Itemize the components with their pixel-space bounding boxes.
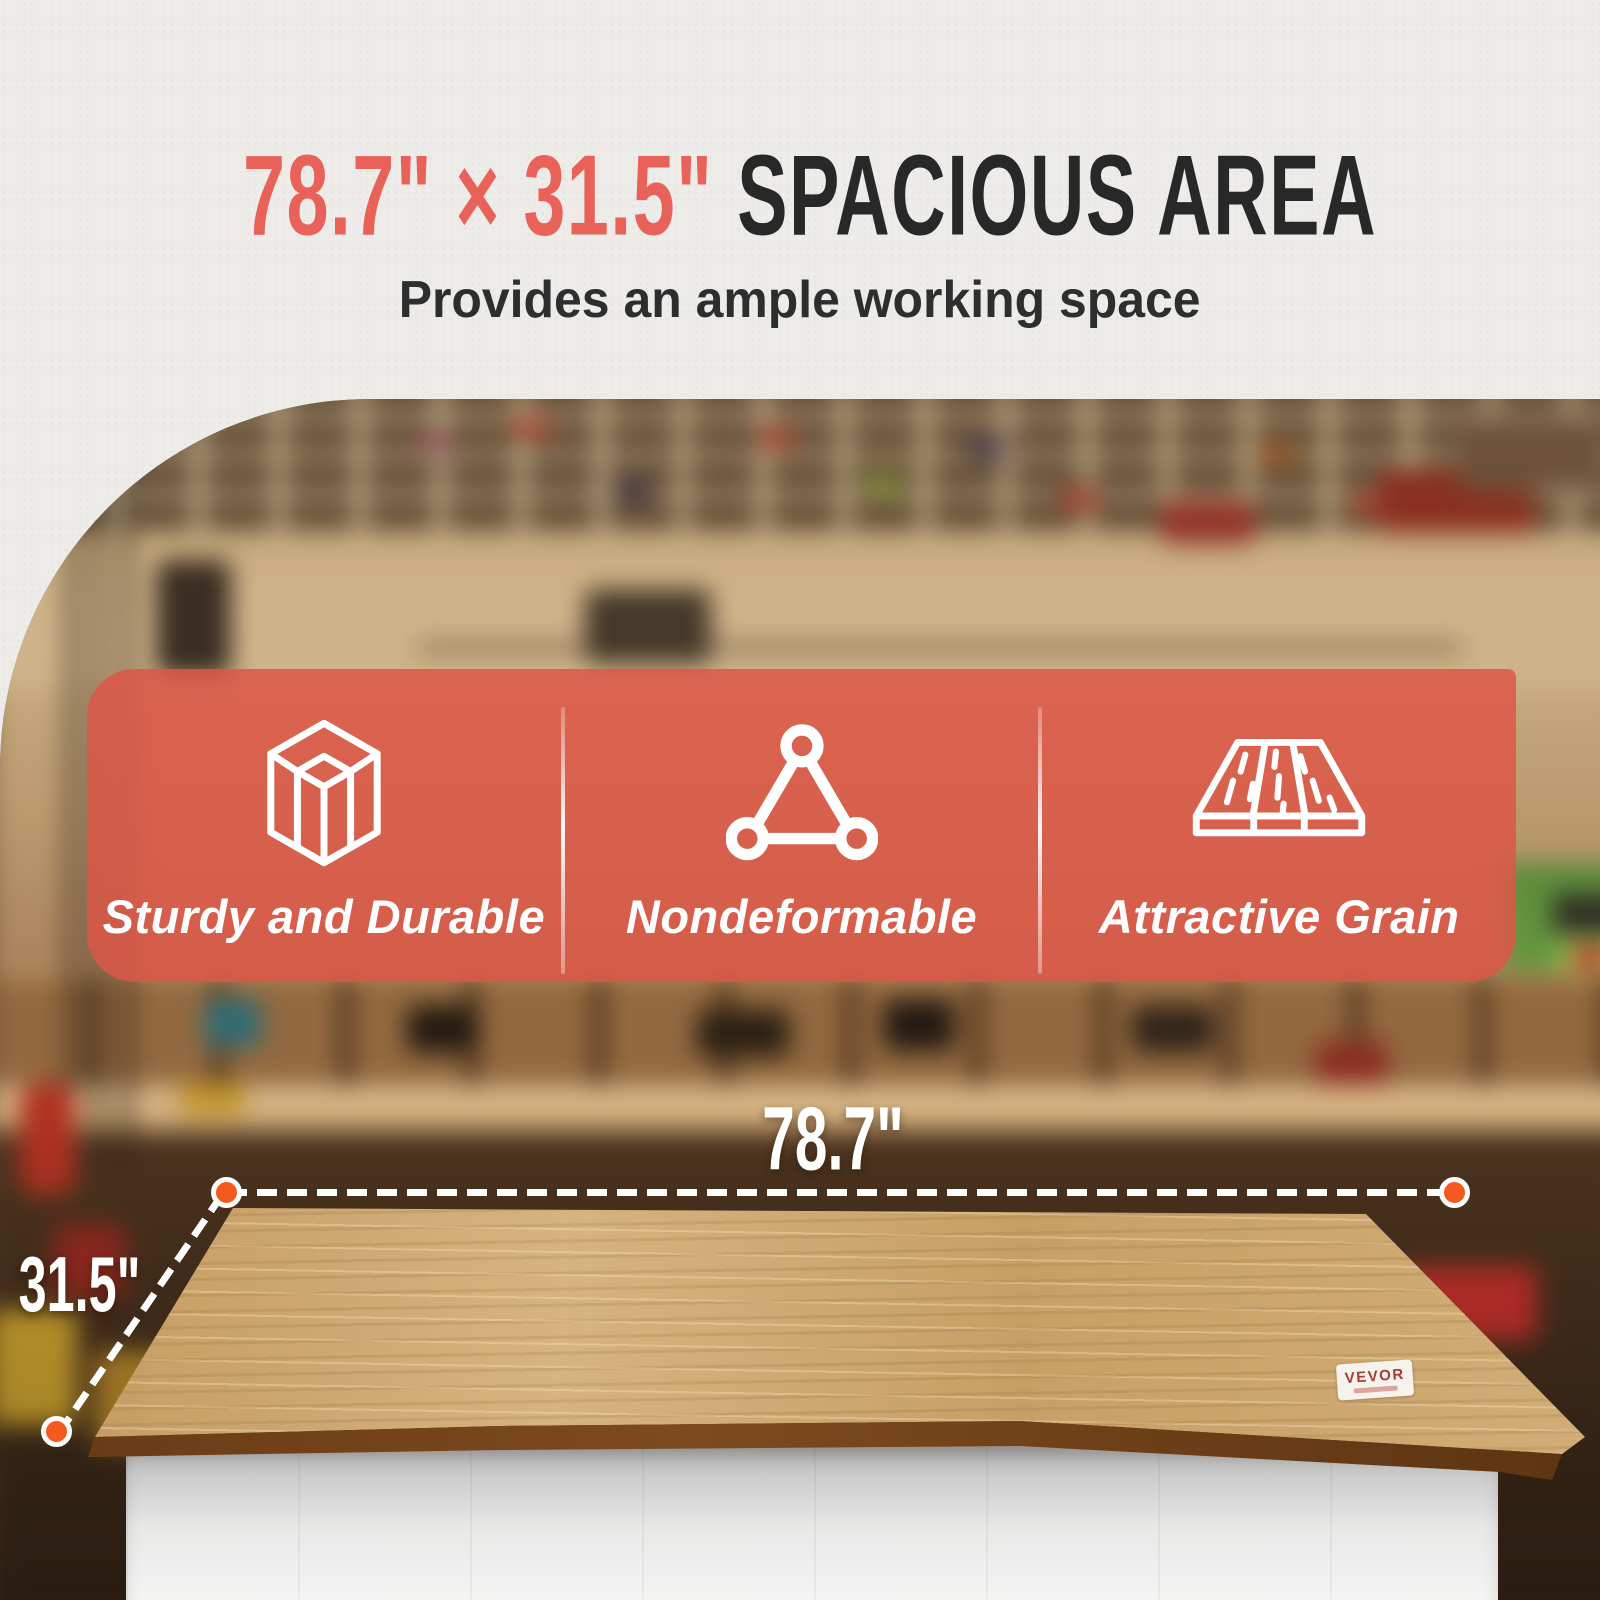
- dimension-dot: [1439, 1177, 1470, 1208]
- feature-label: Nondeformable: [626, 893, 977, 940]
- width-dimension-label: 78.7": [698, 1094, 968, 1180]
- cube-wireframe-icon: [260, 707, 388, 879]
- dimension-dot: [41, 1416, 72, 1447]
- wood-grain-icon: [1184, 707, 1374, 879]
- brand-sticker: VEVOR: [1336, 1359, 1414, 1400]
- feature-label: Sturdy and Durable: [103, 893, 546, 940]
- brand-label: VEVOR: [1344, 1366, 1405, 1385]
- tabletop: [80, 1200, 1590, 1495]
- width-dimension-line: [227, 1189, 1455, 1196]
- page-title: 78.7" × 31.5"SPACIOUS AREA: [0, 138, 1600, 246]
- depth-dimension-label: 31.5": [0, 1246, 180, 1320]
- feature-label: Attractive Grain: [1099, 893, 1460, 940]
- dimension-dot: [211, 1177, 242, 1208]
- feature-item-sturdy: Sturdy and Durable: [87, 669, 561, 982]
- feature-item-nondeformable: Nondeformable: [565, 669, 1039, 982]
- title-text: SPACIOUS AREA: [737, 131, 1377, 259]
- page-subtitle: Provides an ample working space: [0, 272, 1600, 329]
- title-dimensions: 78.7" × 31.5": [243, 131, 713, 259]
- product-infographic: 78.7" × 31.5"SPACIOUS AREA Provides an a…: [0, 0, 1600, 1600]
- triangle-nodes-icon: [726, 707, 878, 879]
- feature-banner: Sturdy and Durable Nondeformable: [87, 669, 1516, 982]
- brand-sticker-subtext: [1354, 1385, 1398, 1393]
- feature-item-grain: Attractive Grain: [1042, 669, 1516, 982]
